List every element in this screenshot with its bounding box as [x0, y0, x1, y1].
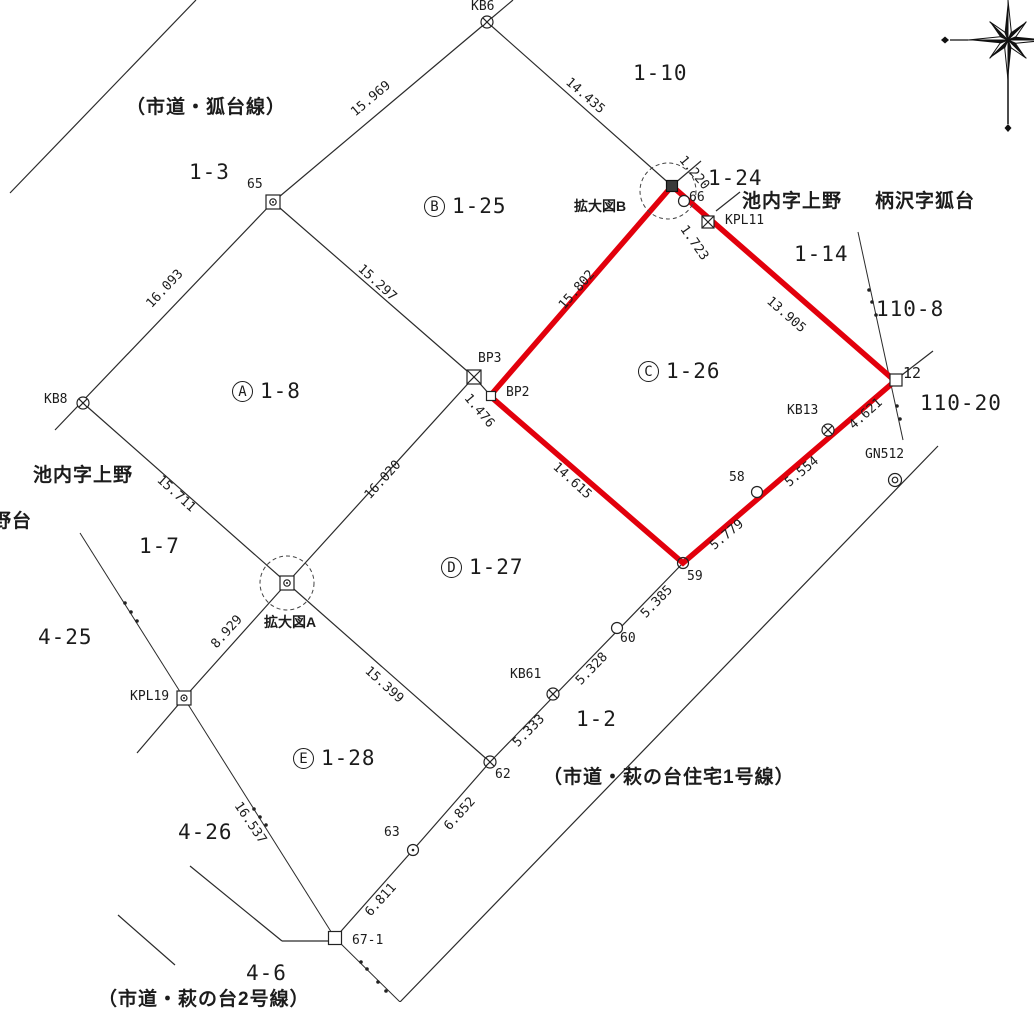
measurement-6-852: 6.852: [442, 795, 478, 833]
measurement-16-537: 16.537: [231, 800, 268, 846]
parcel-label-1-7: 1-7: [139, 536, 180, 557]
measurement-1-220: 1.220: [676, 154, 711, 192]
area-label-karasawa: 柄沢字狐台: [875, 192, 975, 211]
point-label-58: 58: [729, 471, 745, 484]
measurement-15-969: 15.969: [349, 79, 393, 119]
parcel-number-1-27: 1-27: [469, 557, 524, 578]
point-label-kb6: KB6: [471, 0, 494, 13]
parcel-number-1-25: 1-25: [452, 196, 507, 217]
block-letter-e: E: [293, 748, 314, 769]
measurement-15-802: 15.802: [557, 268, 598, 312]
measurement-15-399: 15.399: [362, 664, 406, 705]
parcel-label-4-25: 4-25: [38, 627, 93, 648]
measurement-15-297: 15.297: [355, 262, 399, 303]
point-label-62: 62: [495, 768, 511, 781]
measurement-5-328: 5.328: [574, 650, 611, 687]
road-label-bottom: （市道・萩の台2号線）: [98, 990, 310, 1009]
road-label-haginodai: （市道・萩の台住宅1号線）: [543, 768, 795, 787]
measurement-16-093: 16.093: [144, 267, 186, 310]
measurement-15-711: 15.711: [154, 473, 198, 514]
area-label-nodai: 野台: [0, 512, 32, 531]
measurement-5-554: 5.554: [783, 454, 821, 489]
point-label-12: 12: [903, 366, 921, 381]
parcel-label-1-8: A 1-8: [232, 381, 301, 402]
parcel-label-1-24: 1-24: [708, 168, 763, 189]
point-label-59: 59: [687, 570, 703, 583]
detail-label-expand-a: 拡大図A: [264, 615, 316, 629]
measurement-1-476: 1.476: [461, 392, 496, 430]
measurement-5-385: 5.385: [639, 583, 676, 620]
detail-label-expand-b: 拡大図B: [574, 199, 626, 213]
point-label-kb61: KB61: [510, 668, 541, 681]
area-label-ikenouchi-left: 池内字上野: [33, 466, 133, 485]
parcel-number-1-26: 1-26: [666, 361, 721, 382]
point-label-60: 60: [620, 632, 636, 645]
road-label-kitsunedai: （市道・狐台線）: [126, 98, 286, 117]
parcel-label-110-20: 110-20: [920, 393, 1002, 414]
point-label-63: 63: [384, 826, 400, 839]
parcel-number-1-8: 1-8: [260, 381, 301, 402]
point-label-gn512: GN512: [865, 448, 904, 461]
point-label-67-1: 67-1: [352, 934, 383, 947]
measurement-6-811: 6.811: [363, 881, 399, 919]
parcel-label-1-10: 1-10: [633, 63, 688, 84]
point-label-kb13: KB13: [787, 404, 818, 417]
point-label-bp2: BP2: [506, 386, 529, 399]
measurement-16-020: 16.020: [362, 458, 403, 502]
measurement-1-723: 1.723: [677, 223, 710, 263]
label-layer: （市道・狐台線） （市道・萩の台住宅1号線） （市道・萩の台2号線） 池内字上野…: [0, 0, 1034, 1002]
measurement-13-905: 13.905: [764, 295, 808, 336]
parcel-label-1-27: D 1-27: [441, 557, 524, 578]
block-letter-a: A: [232, 381, 253, 402]
point-label-66: 66: [689, 191, 705, 204]
area-label-ikenouchi-right: 池内字上野: [742, 192, 842, 211]
parcel-label-1-26: C 1-26: [638, 361, 721, 382]
parcel-label-1-28: E 1-28: [293, 748, 376, 769]
block-letter-b: B: [424, 196, 445, 217]
parcel-label-4-6: 4-6: [246, 963, 287, 984]
parcel-label-110-8: 110-8: [876, 299, 944, 320]
cadastral-map-page: { "roads": { "kitsunedai": "（市道・狐台線）", "…: [0, 0, 1034, 1002]
measurement-14-435: 14.435: [563, 76, 607, 117]
measurement-4-621: 4.621: [847, 396, 885, 432]
parcel-label-1-25: B 1-25: [424, 196, 507, 217]
parcel-label-1-3: 1-3: [189, 162, 230, 183]
block-letter-c: C: [638, 361, 659, 382]
parcel-label-1-14: 1-14: [794, 244, 849, 265]
measurement-8-929: 8.929: [209, 613, 245, 651]
parcel-label-1-2: 1-2: [576, 709, 617, 730]
point-label-kpl11: KPL11: [725, 214, 764, 227]
point-label-kpl19: KPL19: [130, 690, 169, 703]
parcel-number-1-28: 1-28: [321, 748, 376, 769]
point-label-bp3: BP3: [478, 352, 501, 365]
point-label-kb8: KB8: [44, 393, 67, 406]
measurement-14-615: 14.615: [550, 460, 594, 501]
point-label-65: 65: [247, 178, 263, 191]
measurement-5-333: 5.333: [511, 712, 548, 749]
parcel-label-4-26: 4-26: [178, 822, 233, 843]
measurement-5-779: 5.779: [708, 517, 746, 552]
block-letter-d: D: [441, 557, 462, 578]
